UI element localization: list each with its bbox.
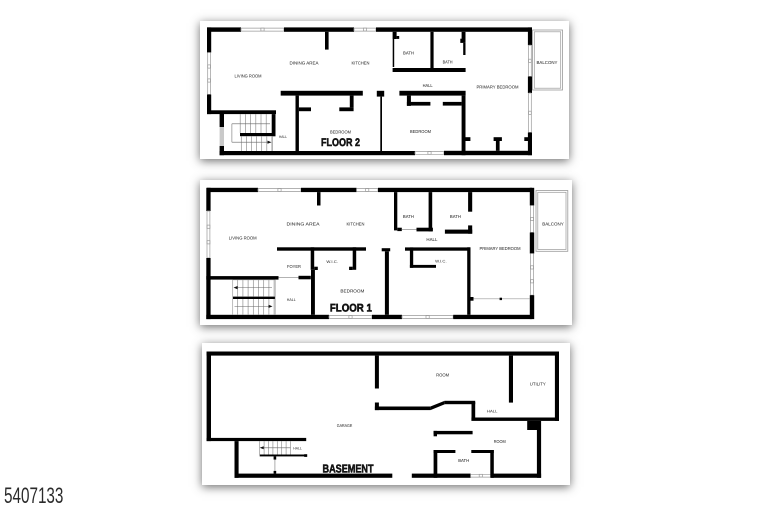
svg-text:BATH: BATH xyxy=(403,50,414,55)
svg-text:HALL: HALL xyxy=(426,237,438,242)
svg-text:DINING AREA: DINING AREA xyxy=(290,60,319,65)
svg-text:HALL: HALL xyxy=(293,446,302,450)
svg-text:FLOOR 2: FLOOR 2 xyxy=(321,137,360,149)
svg-text:W.I.C.: W.I.C. xyxy=(326,260,338,264)
svg-text:BEDROOM: BEDROOM xyxy=(340,288,364,293)
svg-text:BALCONY: BALCONY xyxy=(542,221,564,226)
svg-text:W.I.C.: W.I.C. xyxy=(435,259,447,263)
svg-text:BATH: BATH xyxy=(443,60,453,65)
svg-text:HALL: HALL xyxy=(279,135,287,139)
svg-text:LIVING ROOM: LIVING ROOM xyxy=(235,73,262,78)
svg-text:BEDROOM: BEDROOM xyxy=(410,129,431,134)
svg-text:ROOM: ROOM xyxy=(494,439,506,444)
svg-text:KITCHEN: KITCHEN xyxy=(352,60,370,65)
svg-text:PRIMARY BEDROOM: PRIMARY BEDROOM xyxy=(477,85,519,90)
svg-text:BALCONY: BALCONY xyxy=(537,60,558,65)
svg-text:BEDROOM: BEDROOM xyxy=(330,130,351,135)
svg-text:ROOM: ROOM xyxy=(436,373,449,378)
svg-text:BATH: BATH xyxy=(450,213,461,218)
svg-text:HALL: HALL xyxy=(487,410,498,414)
svg-text:BASEMENT: BASEMENT xyxy=(323,464,374,476)
svg-text:LIVING ROOM: LIVING ROOM xyxy=(229,235,257,240)
svg-text:FLOOR 1: FLOOR 1 xyxy=(330,302,372,314)
svg-text:HALL: HALL xyxy=(287,298,296,302)
svg-text:UTILITY: UTILITY xyxy=(530,382,546,387)
svg-text:PRIMARY BEDROOM: PRIMARY BEDROOM xyxy=(480,246,521,251)
svg-text:BATH: BATH xyxy=(458,458,469,463)
svg-text:KITCHEN: KITCHEN xyxy=(347,221,365,226)
svg-text:BATH: BATH xyxy=(403,213,414,218)
svg-text:DINING AREA: DINING AREA xyxy=(287,221,320,226)
svg-text:GARAGE: GARAGE xyxy=(337,423,353,428)
svg-text:FOYER: FOYER xyxy=(287,264,301,269)
svg-text:HALL: HALL xyxy=(423,83,434,88)
